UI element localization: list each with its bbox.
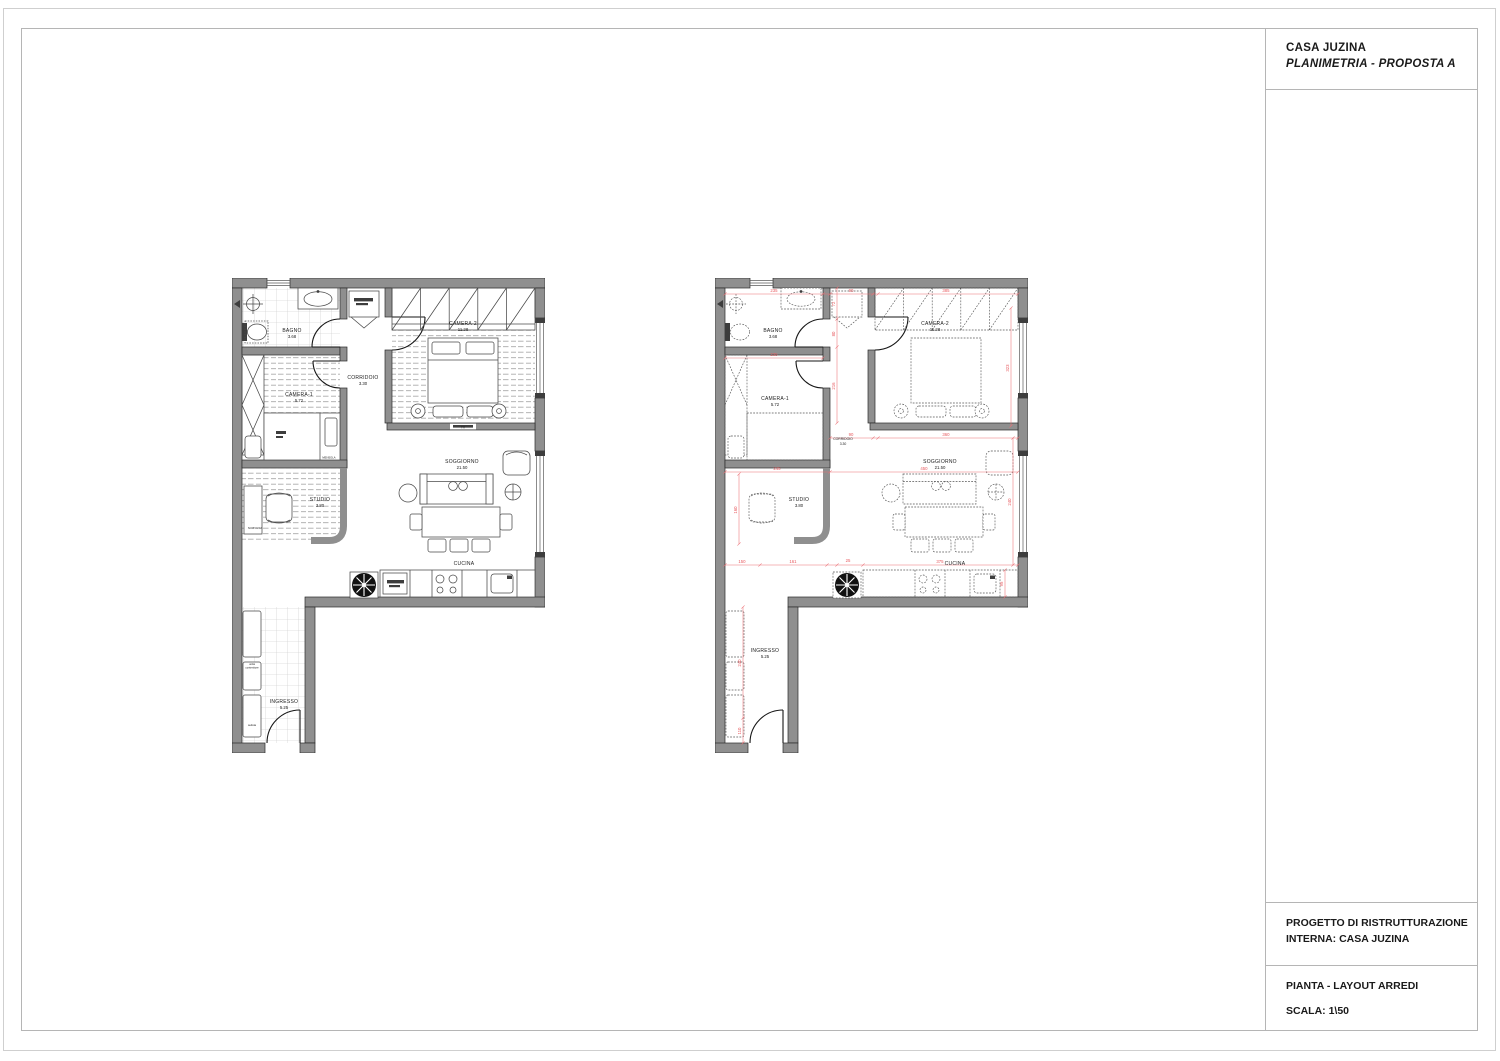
kitchen-counter bbox=[380, 570, 535, 597]
studio-desk bbox=[749, 493, 775, 523]
sheet-name: PIANTA - LAYOUT ARREDI bbox=[1286, 979, 1478, 995]
dim-385-top: 385 bbox=[942, 288, 950, 293]
room-area-bagno: 3.68 bbox=[288, 334, 297, 339]
room-label-corridoio: CORRIDOIO bbox=[833, 437, 853, 441]
entry-storage bbox=[726, 611, 744, 737]
floor-plan-right: 235 90 385 235 72 80 216 323 90 360 245 … bbox=[715, 278, 1028, 753]
dim-95: 95 bbox=[999, 581, 1004, 586]
room-area-studio: 3.80 bbox=[795, 503, 804, 508]
room-area-soggiorno: 21.50 bbox=[457, 465, 468, 470]
floor-lamp bbox=[505, 484, 521, 500]
room-area-camera2: 11.28 bbox=[458, 327, 469, 332]
note-scrivania: SCRIVANIA bbox=[248, 526, 262, 530]
note-tv: TV bbox=[461, 425, 466, 429]
side-table bbox=[882, 484, 900, 502]
dim-72: 72 bbox=[831, 301, 836, 306]
room-area-soggiorno: 21.50 bbox=[935, 465, 946, 470]
room-area-corridoio: 3.30 bbox=[359, 381, 368, 386]
round-unit bbox=[833, 572, 861, 598]
sofa bbox=[903, 474, 976, 504]
dim-110: 110 bbox=[737, 727, 742, 734]
title-block: CASA JUZINA PLANIMETRIA - PROPOSTA A PRO… bbox=[1265, 28, 1478, 1030]
room-area-bagno: 3.68 bbox=[769, 334, 778, 339]
note-seat: seduta bbox=[248, 723, 257, 727]
dim-90-top: 90 bbox=[849, 288, 854, 293]
dim-160: 160 bbox=[733, 506, 738, 514]
room-area-studio: 3.80 bbox=[316, 503, 325, 508]
dim-150: 150 bbox=[738, 559, 746, 564]
armchair bbox=[986, 451, 1013, 475]
dim-245: 245 bbox=[773, 466, 781, 471]
dim-235-top: 235 bbox=[770, 288, 778, 293]
room-area-camera2: 11.28 bbox=[930, 327, 941, 332]
title-block-empty-section bbox=[1266, 90, 1478, 903]
round-unit bbox=[350, 572, 378, 598]
title-block-header: CASA JUZINA PLANIMETRIA - PROPOSTA A bbox=[1266, 28, 1478, 90]
note-mensola: MENSOLA bbox=[322, 456, 335, 460]
entry-storage bbox=[243, 611, 261, 737]
floor-lamp bbox=[988, 484, 1004, 500]
dim-375: 375 bbox=[936, 559, 944, 564]
dim-80: 80 bbox=[831, 331, 836, 336]
washer-dryer bbox=[349, 291, 379, 328]
room-area-ingresso: 5.25 bbox=[280, 705, 289, 710]
washer-dryer bbox=[832, 291, 862, 328]
note-container-1: unità bbox=[249, 662, 255, 666]
sofa bbox=[420, 474, 493, 504]
note-container-2: contenitore bbox=[245, 666, 259, 670]
armchair bbox=[503, 451, 530, 475]
camera1-bed bbox=[728, 413, 823, 460]
dim-240-right: 240 bbox=[1007, 498, 1012, 506]
room-label-cucina: CUCINA bbox=[454, 561, 475, 567]
title-block-sheet-section: PIANTA - LAYOUT ARREDI SCALA: 1\50 bbox=[1266, 966, 1478, 1030]
drawing-subtitle: PLANIMETRIA - PROPOSTA A bbox=[1286, 58, 1478, 70]
project-description-line2: INTERNA: CASA JUZINA bbox=[1286, 932, 1478, 948]
side-table bbox=[399, 484, 417, 502]
kitchen-counter bbox=[863, 570, 1018, 597]
room-area-ingresso: 5.25 bbox=[761, 654, 770, 659]
dim-240-entry: 240 bbox=[737, 659, 742, 667]
dim-450: 450 bbox=[920, 466, 928, 471]
dim-360: 360 bbox=[942, 432, 950, 437]
dim-323: 323 bbox=[1005, 364, 1010, 372]
dim-161: 161 bbox=[789, 559, 797, 564]
room-area-corridoio: 3.30 bbox=[840, 442, 847, 446]
dining-table bbox=[893, 507, 995, 552]
room-area-camera1: 5.72 bbox=[771, 402, 780, 407]
dim-216: 216 bbox=[831, 382, 836, 390]
dim-25: 25 bbox=[846, 558, 851, 563]
dim-235-mid: 235 bbox=[770, 352, 778, 357]
project-description-line1: PROGETTO DI RISTRUTTURAZIONE bbox=[1286, 916, 1478, 932]
room-area-camera1: 5.72 bbox=[295, 398, 304, 403]
floor-plan-left: BAGNO 3.68 CAMERA-1 5.72 CAMERA-2 11.28 … bbox=[232, 278, 545, 753]
sheet-scale: SCALA: 1\50 bbox=[1286, 1004, 1478, 1020]
camera1-bed bbox=[245, 413, 340, 460]
room-label-cucina: CUCINA bbox=[945, 561, 966, 567]
camera2-bed bbox=[894, 338, 989, 418]
dining-table bbox=[410, 507, 512, 552]
title-block-project-section: PROGETTO DI RISTRUTTURAZIONE INTERNA: CA… bbox=[1266, 903, 1478, 966]
project-title: CASA JUZINA bbox=[1286, 42, 1478, 54]
